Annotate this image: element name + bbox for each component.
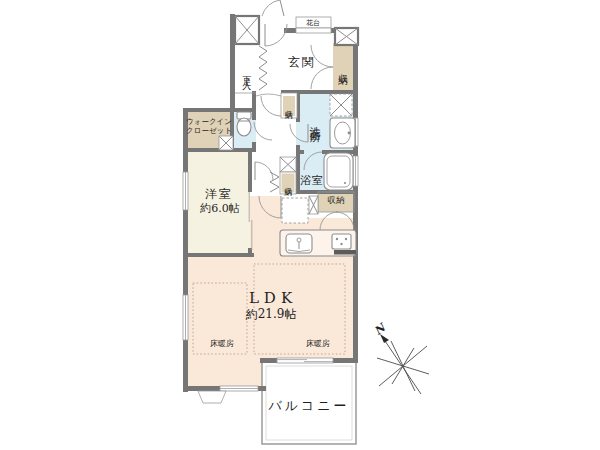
entrance-step-curve — [256, 94, 281, 96]
shoe-cabinet-folding-door — [259, 46, 267, 90]
entrance-window — [296, 28, 331, 33]
entrance-storage-label: 収納 — [337, 66, 349, 70]
hall-storage-label: 収納 — [284, 104, 293, 108]
kitchen-storage-label: 収納 — [328, 195, 345, 206]
shoe-cabinet-label: 下足入 — [240, 69, 251, 75]
floor-heating-right-label: 床暖房 — [306, 339, 330, 349]
entrance-inner-door-arc — [265, 24, 287, 46]
balcony-sliding-door — [277, 358, 333, 363]
folding-doors — [259, 46, 279, 192]
ldk-size: 約21.9帖 — [246, 307, 297, 322]
washroom-label: 洗面所 — [307, 118, 321, 124]
bay-window — [198, 391, 226, 403]
toilet-icon — [237, 112, 251, 136]
flower-stand-label: 花台 — [306, 19, 320, 28]
compass-rose — [377, 334, 429, 394]
floor-plan: 玄関 収納 花台 下足入 収納 洗面所 ウォークインクローゼット 洋室 約6.0… — [0, 0, 600, 450]
grill-bar — [334, 250, 356, 255]
entrance-label: 玄関 — [288, 55, 316, 70]
kitchen-sink-icon — [286, 234, 312, 253]
washing-machine-pan-icon — [330, 94, 352, 116]
bathtub-icon — [324, 153, 353, 190]
kitchen-counter — [280, 230, 356, 256]
western-room-size: 約6.0帖 — [200, 202, 240, 216]
floor-heating-left-label: 床暖房 — [210, 339, 234, 349]
vanity-sink-icon — [330, 118, 355, 148]
storage-folding-door — [270, 172, 279, 192]
ldk-label: LDK — [249, 289, 297, 308]
western-room-label: 洋室 — [205, 187, 233, 202]
walk-in-closet-label: ウォークインクローゼット — [186, 117, 232, 136]
refrigerator-space — [282, 198, 308, 223]
bathroom-label: 浴室 — [300, 174, 324, 188]
hallway-storage-label: 収納 — [283, 181, 292, 185]
balcony-label: バルコニー — [268, 398, 349, 414]
entry-door-arc — [262, 0, 280, 16]
